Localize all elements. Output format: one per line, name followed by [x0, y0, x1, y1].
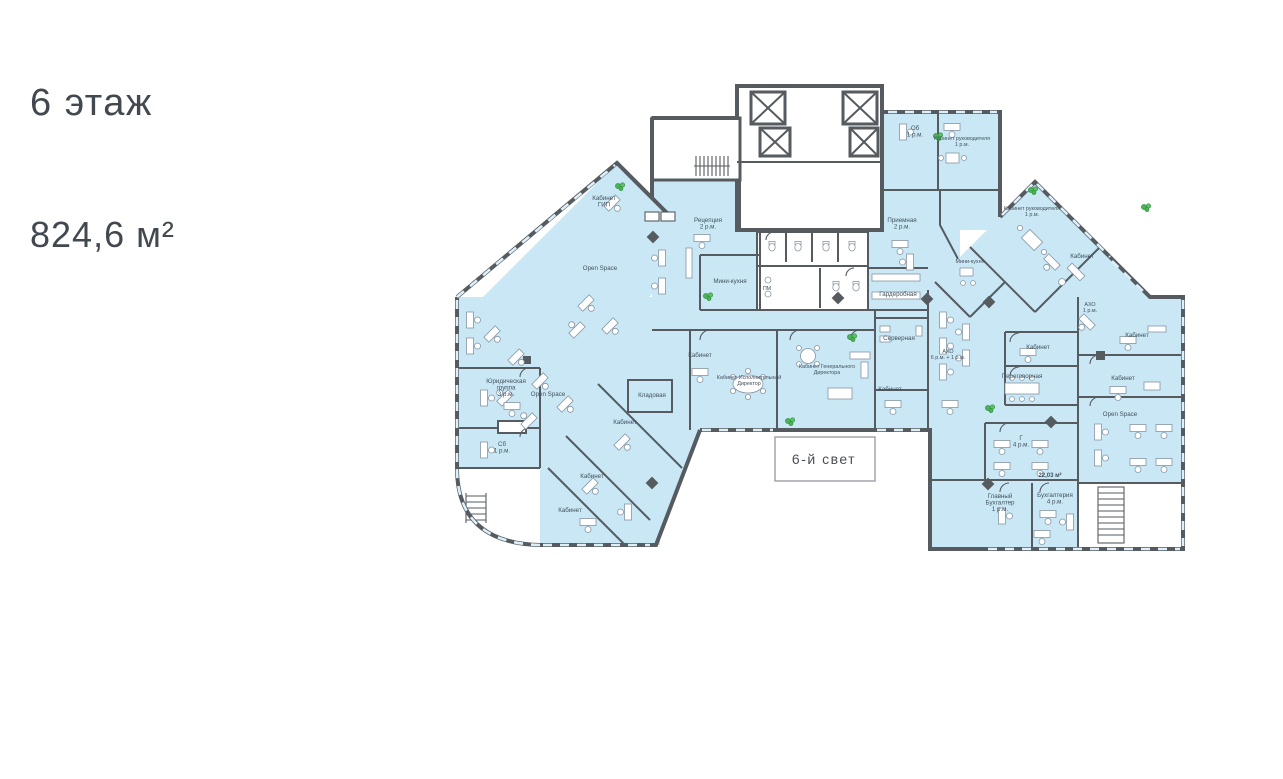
room-label-aho-1: АХО1 р.м. — [1083, 302, 1097, 314]
room-label-area-22: 22,03 м² — [1038, 472, 1061, 479]
room-label-cab-4: Кабинет — [688, 352, 712, 359]
page: 6 этаж 824,6 м² — [0, 0, 1283, 779]
room-label-cab-9: Кабинет — [1026, 344, 1050, 351]
room-label-cab-2: Кабинет — [580, 473, 604, 480]
room-label-cab-7: Кабинет — [1125, 332, 1149, 339]
room-label-cab-3: Кабинет — [558, 507, 582, 514]
room-label-wardrobe: Гардеробная — [879, 291, 916, 298]
room-label-cab-8: Кабинет — [1111, 375, 1135, 382]
room-label-open-space-1: Open Space — [583, 265, 618, 272]
room-label-cab-5: Кабинет — [878, 386, 902, 393]
room-label-pm: ПМ — [763, 286, 772, 292]
room-label-open-space-2: Open Space — [531, 391, 566, 398]
room-label-open-space-3: Open Space — [1103, 411, 1138, 418]
room-label-meeting: Переговорная — [1002, 373, 1043, 380]
room-label-mini-kitchen-1: Мини-кухня — [713, 278, 746, 285]
room-label-server: Серверная — [883, 335, 915, 342]
room-label-storage: Кладовая — [638, 392, 666, 399]
floor-plan-svg: 6-й свет — [0, 0, 1283, 779]
room-label-cab-1: Кабинет — [613, 419, 637, 426]
atrium-label: 6-й свет — [792, 451, 856, 467]
atrium-box: 6-й свет — [775, 437, 875, 481]
room-label-cab-6: Кабинет — [1070, 253, 1094, 260]
room-label-mini-kitchen-2: Мини-кухня — [956, 259, 985, 265]
